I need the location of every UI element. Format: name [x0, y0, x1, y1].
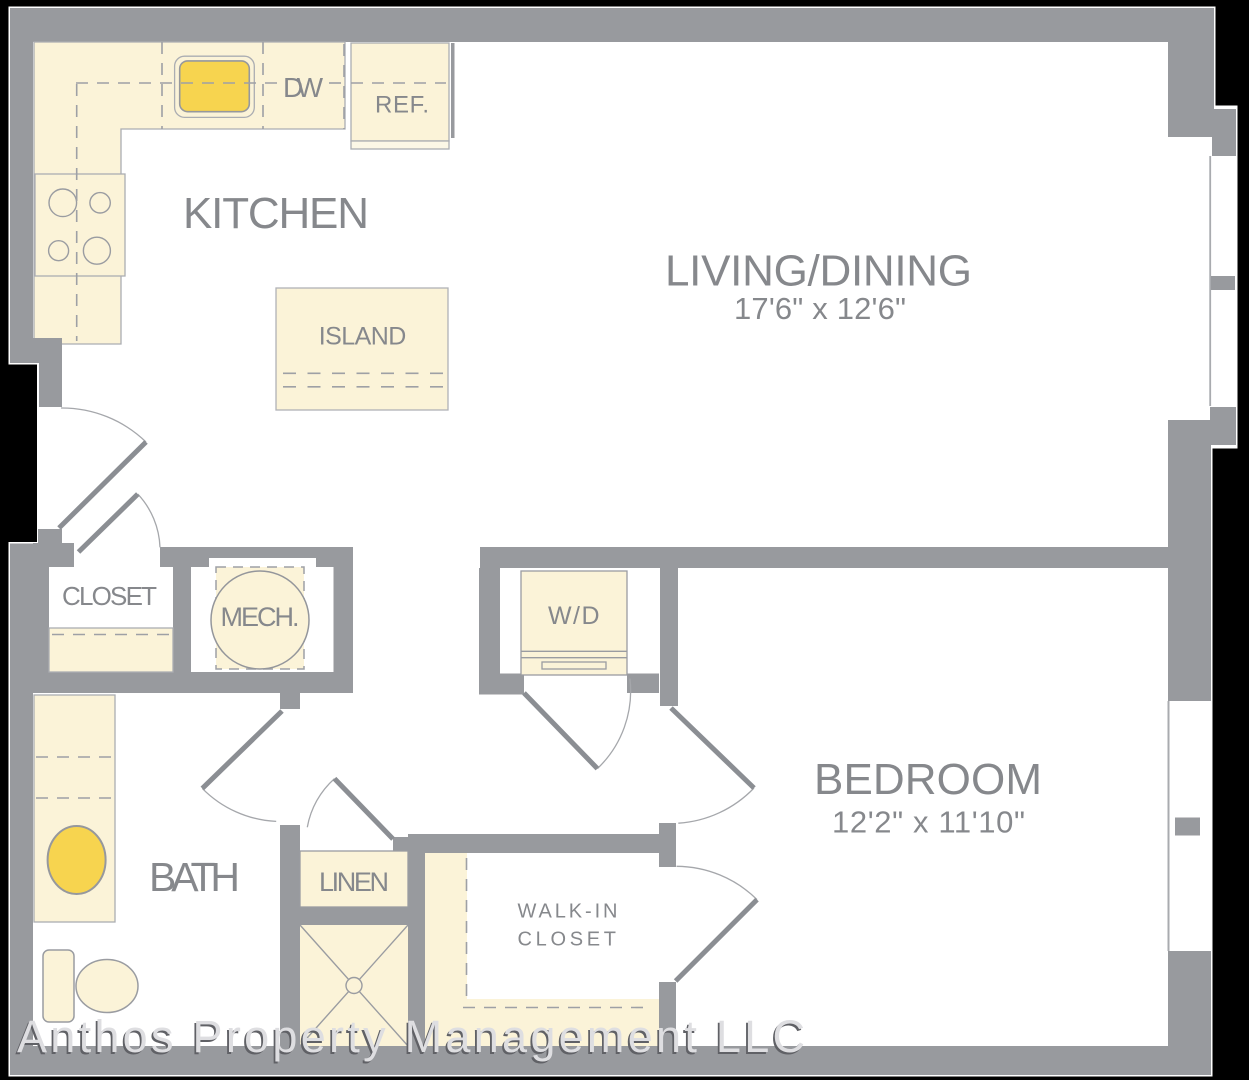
svg-text:MECH.: MECH. [221, 602, 300, 632]
svg-text:Anthos Property Management LLC: Anthos Property Management LLC [17, 1011, 805, 1062]
svg-text:BATH: BATH [149, 854, 240, 900]
svg-text:LIVING/DINING: LIVING/DINING [665, 247, 972, 296]
svg-text:ISLAND: ISLAND [319, 323, 407, 351]
svg-text:LINEN: LINEN [319, 867, 389, 897]
svg-text:W/D: W/D [548, 602, 600, 630]
svg-text:REF.: REF. [375, 92, 429, 119]
svg-text:CLOSET: CLOSET [62, 581, 157, 611]
svg-text:BEDROOM: BEDROOM [814, 755, 1042, 804]
svg-text:KITCHEN: KITCHEN [183, 189, 369, 238]
svg-text:DW: DW [283, 72, 324, 103]
svg-text:12'2" x 11'10": 12'2" x 11'10" [832, 805, 1025, 840]
svg-text:17'6" x 12'6": 17'6" x 12'6" [734, 291, 906, 326]
